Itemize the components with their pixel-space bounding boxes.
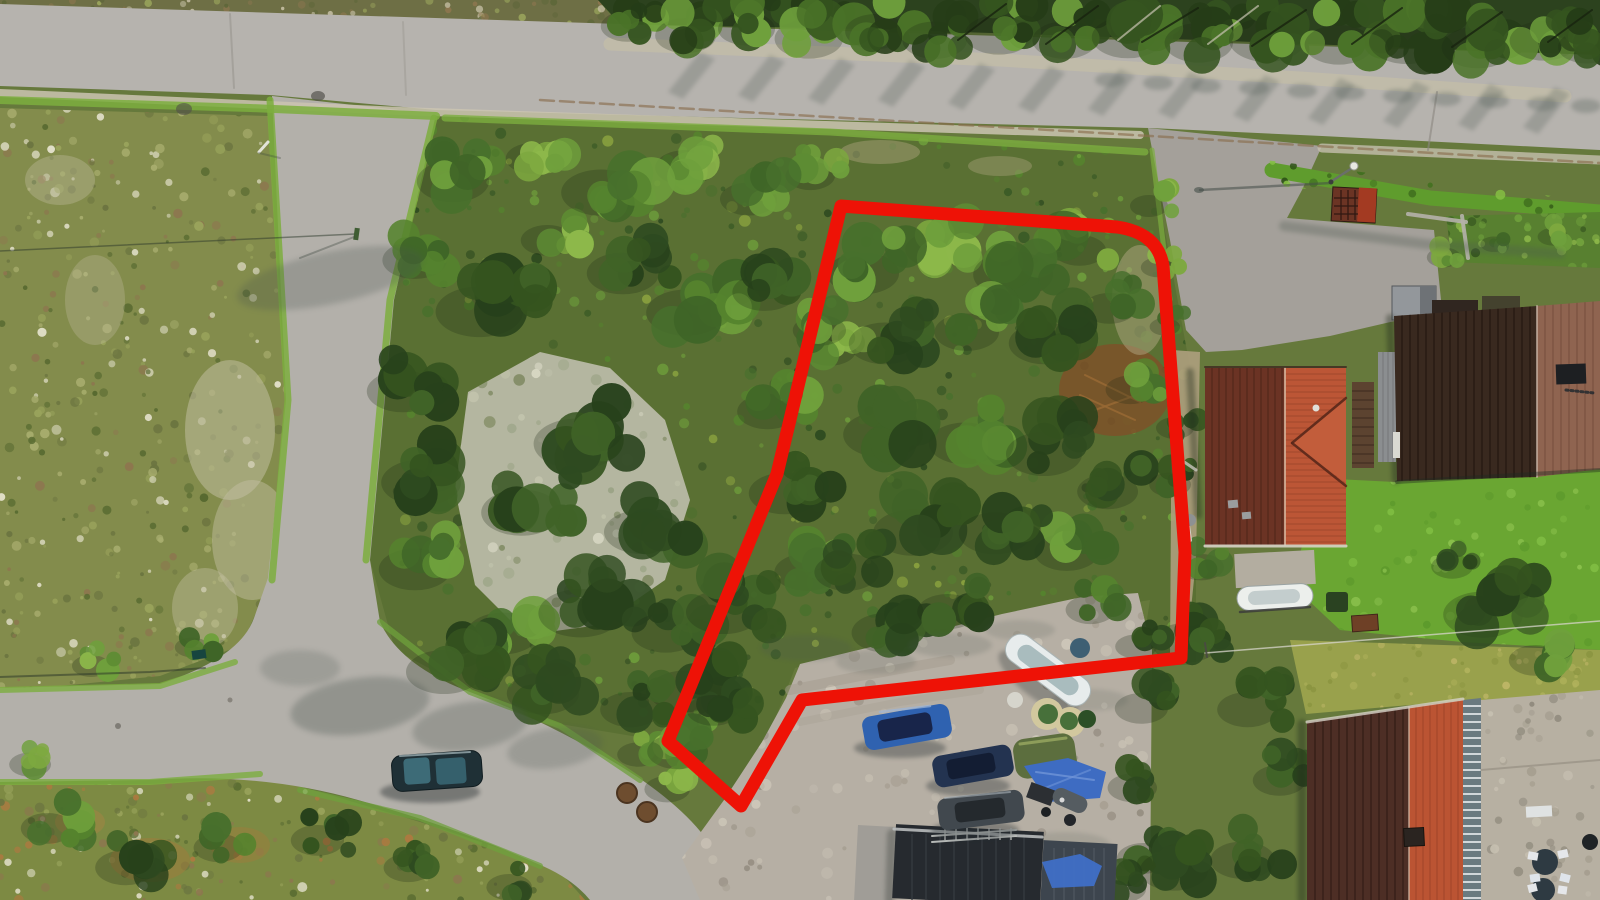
street-lamp-base [1329, 180, 1334, 185]
outbuilding-shadow [890, 834, 892, 900]
patio-chair [1529, 873, 1540, 882]
leaf-shadow-dapples [1143, 76, 1173, 90]
manhole [637, 802, 657, 822]
bottom-house-sunlit-slope [1409, 700, 1463, 900]
leaf-shadow-dapples [1431, 92, 1461, 106]
leaf-shadow-dapples [1191, 79, 1221, 93]
road-stain [176, 103, 192, 115]
lumber-pile [1352, 382, 1374, 468]
manhole [617, 783, 637, 803]
white-door [1393, 432, 1400, 458]
car-rear-glass [435, 757, 467, 785]
dry-grass-patch [840, 140, 920, 164]
pool-cover-dark [1078, 710, 1096, 728]
lamp-head-shadow [1194, 187, 1204, 193]
chimney-cap [1313, 405, 1320, 412]
boat-interior [1248, 589, 1301, 606]
pool-water [1060, 712, 1078, 730]
leaf-shadow-dapples [1095, 73, 1125, 87]
roof-hatch [1556, 363, 1587, 384]
worn-patch [25, 155, 95, 205]
leaf-shadow-dapples [1239, 81, 1269, 95]
concrete-pad [1234, 550, 1316, 588]
garden-bench [1526, 805, 1553, 817]
aerial-property-photo [0, 0, 1600, 900]
dry-grass-patch [968, 156, 1032, 176]
leaf-shadow-dapples [1287, 84, 1317, 98]
chimney [1404, 827, 1425, 846]
shadow-parking [908, 633, 992, 657]
leaf-shadow-dapples [1571, 99, 1600, 113]
garden-shed-small [1351, 614, 1378, 632]
worn-patch [185, 360, 275, 500]
leaf-shadow-dapples [1527, 97, 1557, 111]
road-stain [311, 91, 325, 101]
equipment-wheel [1041, 807, 1051, 817]
shadow-parking [760, 635, 852, 661]
equipment-wheel [1064, 814, 1076, 826]
patio-chair [1557, 885, 1567, 894]
leaf-shadow-dapples [1479, 94, 1509, 108]
post-hut-roof [1357, 188, 1377, 223]
ac-unit [1228, 500, 1239, 509]
shadow-curve [260, 650, 340, 686]
aerial-scene [0, 0, 1600, 900]
road-stain [228, 698, 233, 703]
boat-cover [1070, 638, 1090, 658]
white-ring-item [1007, 692, 1023, 708]
equipment-glint [1060, 798, 1065, 803]
trampoline [1326, 592, 1348, 612]
shadow-parking [836, 650, 916, 674]
leaf-shadow-dapples [1335, 86, 1365, 100]
skylight-strip [1463, 698, 1481, 900]
worn-patch [65, 255, 125, 345]
road-stain [115, 723, 121, 729]
leaf-shadow-dapples [1383, 89, 1413, 103]
pool-water [1038, 704, 1058, 724]
grill [1582, 834, 1598, 850]
ac-unit [1242, 512, 1252, 520]
patio-chair [1527, 851, 1538, 861]
car-windshield [403, 757, 431, 785]
street-lamp-head [1350, 162, 1358, 170]
